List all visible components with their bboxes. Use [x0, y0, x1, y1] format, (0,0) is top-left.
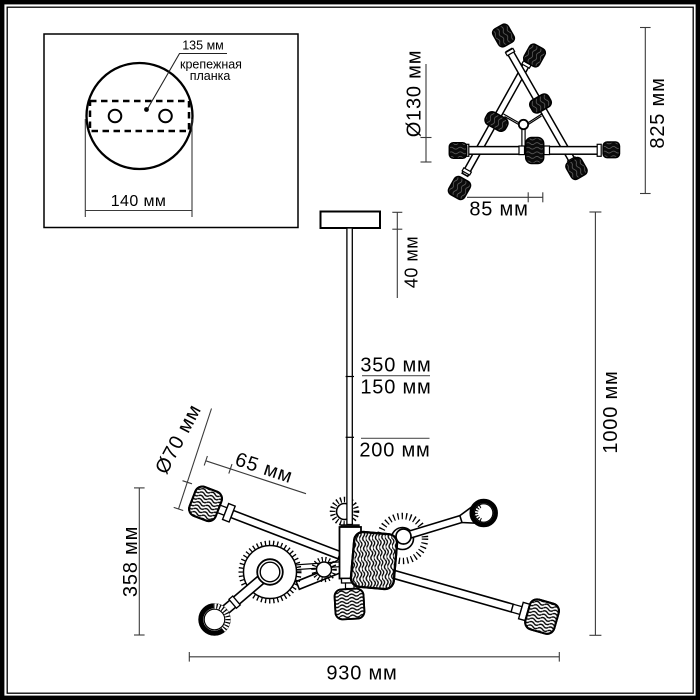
svg-text:1000 мм: 1000 мм — [600, 370, 622, 453]
svg-text:Ø130 мм: Ø130 мм — [404, 50, 426, 138]
svg-text:200 мм: 200 мм — [359, 440, 430, 462]
svg-text:140 мм: 140 мм — [111, 193, 167, 210]
svg-text:150 мм: 150 мм — [360, 377, 431, 399]
svg-text:планка: планка — [190, 69, 231, 83]
svg-text:85 мм: 85 мм — [469, 199, 528, 221]
svg-text:825 мм: 825 мм — [647, 77, 669, 148]
svg-text:358 мм: 358 мм — [120, 526, 142, 597]
svg-text:930 мм: 930 мм — [326, 663, 397, 685]
svg-text:135 мм: 135 мм — [182, 39, 224, 53]
svg-text:350 мм: 350 мм — [360, 355, 431, 377]
svg-text:40 мм: 40 мм — [402, 236, 422, 288]
